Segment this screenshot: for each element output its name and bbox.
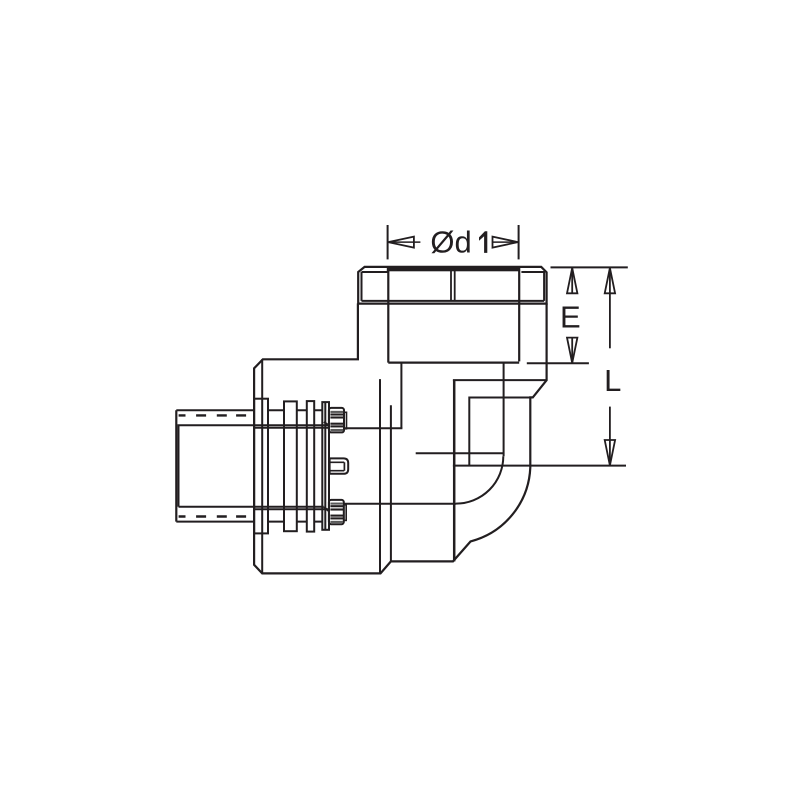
- svg-text:Ød: Ød: [430, 225, 471, 260]
- svg-text:E: E: [560, 300, 581, 335]
- svg-text:L: L: [604, 363, 621, 398]
